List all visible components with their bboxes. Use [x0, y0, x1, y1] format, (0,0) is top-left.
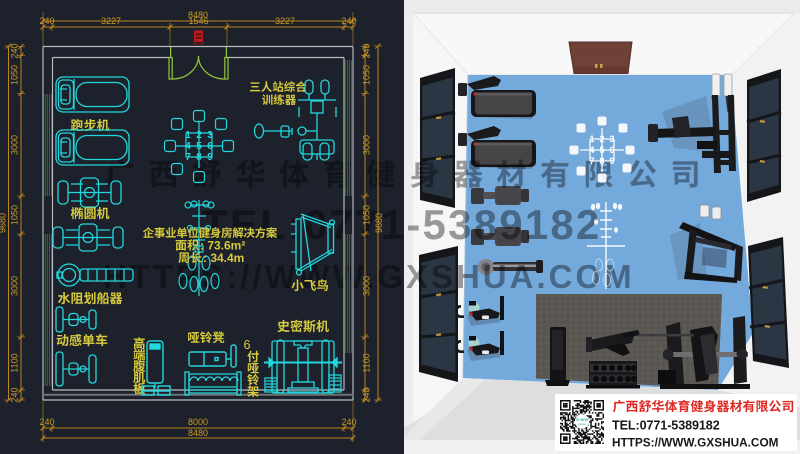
svg-text:7: 7	[589, 156, 594, 166]
svg-text:3000: 3000	[10, 135, 20, 155]
svg-text:240: 240	[10, 43, 20, 58]
svg-text:8: 8	[599, 156, 604, 166]
svg-text:1050: 1050	[362, 205, 372, 225]
svg-text:1050: 1050	[10, 65, 20, 85]
svg-text:3227: 3227	[275, 16, 295, 26]
svg-text:9: 9	[609, 156, 614, 166]
svg-text:5: 5	[599, 145, 604, 155]
svg-text:240: 240	[341, 417, 356, 427]
svg-text:9680: 9680	[0, 213, 8, 233]
svg-text:3000: 3000	[362, 135, 372, 155]
svg-text:1050: 1050	[10, 205, 20, 225]
svg-text:240: 240	[39, 417, 54, 427]
svg-text:9680: 9680	[374, 213, 384, 233]
svg-text:1: 1	[185, 130, 191, 141]
svg-text:6: 6	[609, 145, 614, 155]
svg-text:TEL:0771-5389182: TEL:0771-5389182	[612, 419, 720, 433]
svg-text:: 34.4m: : 34.4m	[203, 251, 244, 265]
svg-text:240: 240	[362, 43, 372, 58]
svg-text:8: 8	[196, 152, 202, 163]
svg-text:3227: 3227	[101, 16, 121, 26]
svg-text:1546: 1546	[188, 16, 208, 26]
svg-text:9: 9	[207, 152, 213, 163]
svg-text:6: 6	[207, 141, 213, 152]
svg-text:240: 240	[39, 16, 54, 26]
svg-text:1100: 1100	[362, 353, 372, 372]
svg-text:2: 2	[599, 134, 604, 144]
svg-text:3000: 3000	[10, 276, 20, 296]
svg-text:240: 240	[362, 387, 372, 402]
svg-text:5: 5	[196, 141, 202, 152]
svg-text:HTTPS://WWW.GXSHUA.COM: HTTPS://WWW.GXSHUA.COM	[612, 436, 779, 450]
svg-text:8480: 8480	[188, 428, 208, 438]
svg-text:TEL:0771-5389182: TEL:0771-5389182	[202, 201, 601, 248]
svg-text:S-ww: S-ww	[576, 417, 589, 423]
svg-text:1100: 1100	[10, 353, 20, 372]
svg-text:3: 3	[207, 130, 213, 141]
svg-text:3000: 3000	[362, 276, 372, 296]
svg-text:1050: 1050	[362, 65, 372, 85]
svg-text:240: 240	[10, 387, 20, 402]
svg-text:8000: 8000	[188, 417, 208, 427]
svg-text:240: 240	[341, 16, 356, 26]
svg-text:6: 6	[244, 338, 251, 352]
svg-text:7: 7	[185, 152, 191, 163]
svg-text:4: 4	[185, 141, 191, 152]
svg-text:2: 2	[196, 130, 202, 141]
svg-text:4: 4	[589, 145, 594, 155]
svg-text:1: 1	[589, 134, 594, 144]
svg-text:3: 3	[609, 134, 614, 144]
